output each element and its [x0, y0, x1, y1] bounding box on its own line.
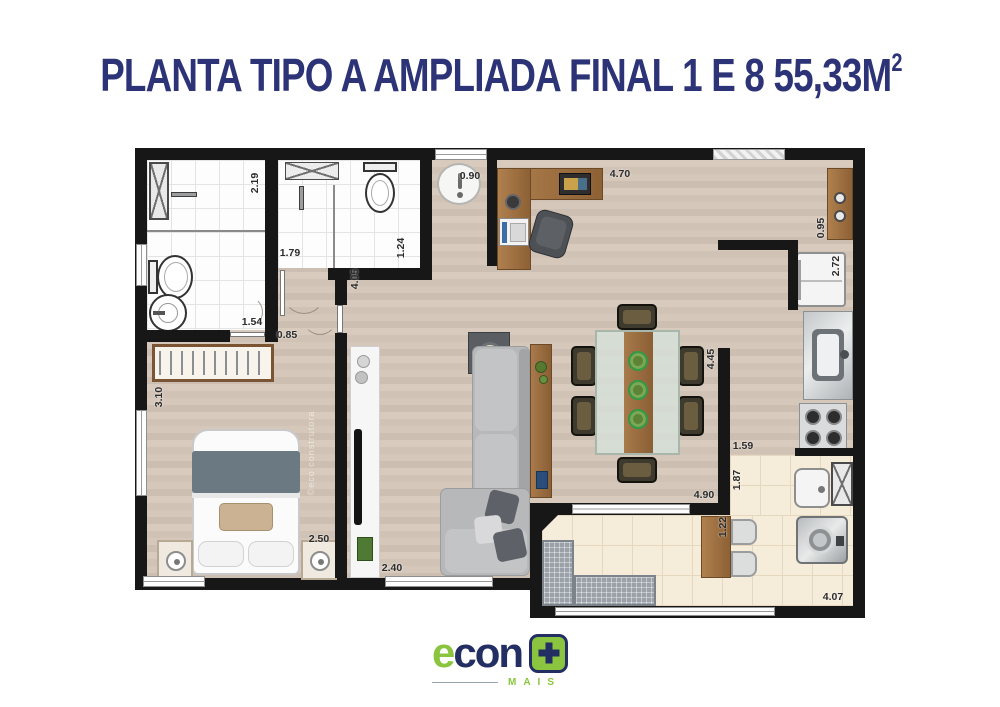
- wall: [795, 448, 853, 456]
- shower-partition: [147, 230, 265, 232]
- round-sink: [149, 294, 187, 332]
- top-wall-window: [713, 149, 785, 160]
- service-duct: [831, 462, 853, 506]
- bathroom-2-door: [280, 270, 285, 316]
- dim-bedroom-len: 3.10: [153, 387, 165, 407]
- water-tank: [794, 468, 830, 508]
- accent-pillow: [219, 503, 273, 531]
- title-bar: PLANTA TIPO A AMPLIADA FINAL 1 E 8 55,33…: [0, 48, 1000, 102]
- balcony-bench-side: [542, 540, 574, 606]
- bathroom-1-window: [136, 244, 147, 286]
- dim-entry-door: 0.90: [460, 170, 480, 182]
- nightstand-left: [157, 540, 193, 580]
- tv: [354, 429, 362, 525]
- logo-mais: MAIS: [508, 677, 561, 688]
- wall: [718, 240, 798, 250]
- dim-sideboard: 0.95: [815, 218, 827, 238]
- dim-living-len: 4.90: [694, 489, 714, 501]
- dining-chair-top: [617, 304, 657, 330]
- shower-head-2: [299, 186, 304, 210]
- bed-pillow-left: [198, 541, 244, 567]
- dining-chair-left-1: [571, 346, 597, 386]
- dim-bath2-w: 1.79: [280, 247, 300, 259]
- dim-balcony-len: 4.07: [823, 591, 843, 603]
- throw-pillow-3: [492, 527, 528, 563]
- shower-duct: [149, 162, 169, 220]
- desk-bowl: [505, 194, 521, 210]
- dim-hall-len: 4.05: [349, 269, 361, 289]
- dim-bedroom-w: 2.50: [309, 533, 329, 545]
- wall: [147, 330, 230, 342]
- brand-logo: econ MAIS: [432, 632, 568, 688]
- dining-chair-left-2: [571, 396, 597, 436]
- service-chair-2: [731, 551, 757, 577]
- dim-service-len: 1.87: [731, 470, 743, 490]
- logo-rule: [432, 682, 498, 683]
- bathroom-1-door: [230, 332, 265, 337]
- duct-shelf: [285, 162, 339, 180]
- sideboard-bowl-2: [834, 210, 846, 222]
- dim-bath1-door: 0.85: [277, 329, 297, 341]
- balcony-rail-window: [555, 607, 775, 616]
- dim-kitchen-len: 4.45: [705, 349, 717, 369]
- dim-bath1-len: 2.19: [249, 173, 261, 193]
- dining-chair-right-1: [678, 346, 704, 386]
- floor-plan: ©eco construtora 2.19 1.54 0.85 1.79 1.2…: [135, 148, 865, 618]
- service-chair-1: [731, 519, 757, 545]
- balcony-sliding-door: [572, 504, 690, 514]
- toilet-2: [357, 162, 405, 218]
- sideboard: [827, 168, 853, 240]
- sink-counter: [803, 311, 853, 400]
- dining-table: [595, 330, 680, 455]
- entry-door: [435, 149, 487, 160]
- shower-head: [171, 192, 197, 197]
- dim-tv-wall: 2.40: [382, 562, 402, 574]
- stove: [799, 403, 847, 449]
- wall: [420, 160, 432, 268]
- double-bed: [192, 429, 300, 575]
- tv-plant: [357, 537, 373, 561]
- balcony-bench-front: [574, 575, 656, 606]
- console-table: [530, 344, 552, 498]
- bathroom-2-door-arc: [283, 272, 325, 314]
- living-window: [385, 576, 493, 587]
- wall: [718, 348, 730, 515]
- shower-partition-2: [333, 185, 335, 268]
- dining-chair-bottom: [617, 457, 657, 483]
- dim-kitchen-w: 1.59: [733, 440, 753, 452]
- page-title: PLANTA TIPO A AMPLIADA FINAL 1 E 8 55,33…: [100, 48, 902, 102]
- wall: [487, 160, 497, 266]
- bedroom-door: [337, 305, 343, 333]
- dining-chair-right-2: [678, 396, 704, 436]
- wall: [788, 240, 798, 310]
- page-title-text: PLANTA TIPO A AMPLIADA FINAL 1 E 8 55,33…: [100, 49, 891, 101]
- watermark: ©eco construtora: [306, 411, 316, 496]
- washing-machine: [796, 516, 848, 564]
- page-title-sup: 2: [891, 49, 901, 77]
- closet: [152, 344, 274, 382]
- picture-frame: [559, 173, 591, 195]
- dim-living-w: 4.70: [610, 168, 630, 180]
- dim-bath1-w: 1.54: [242, 316, 262, 328]
- logo-letter-e: e: [432, 629, 453, 676]
- wall: [265, 160, 278, 330]
- logo-subline: MAIS: [432, 677, 568, 688]
- balcony-chamfer: [542, 515, 558, 531]
- dim-fridge-nook: 2.72: [830, 256, 842, 276]
- plus-icon: [529, 634, 568, 673]
- bedroom-side-window: [136, 410, 147, 496]
- dim-bath2-len: 1.24: [395, 238, 407, 258]
- logo-wordmark: econ: [432, 632, 522, 674]
- laptop: [499, 218, 529, 246]
- dim-service-w: 1.22: [717, 517, 729, 537]
- tv-panel: [350, 346, 380, 578]
- bedroom-window: [143, 576, 205, 587]
- nightstand-right: [301, 540, 337, 580]
- logo-letters-con: con: [453, 629, 522, 676]
- wall: [335, 268, 347, 305]
- page: PLANTA TIPO A AMPLIADA FINAL 1 E 8 55,33…: [0, 0, 1000, 707]
- sideboard-bowl-1: [834, 192, 846, 204]
- wall: [335, 333, 347, 578]
- bed-pillow-right: [248, 541, 294, 567]
